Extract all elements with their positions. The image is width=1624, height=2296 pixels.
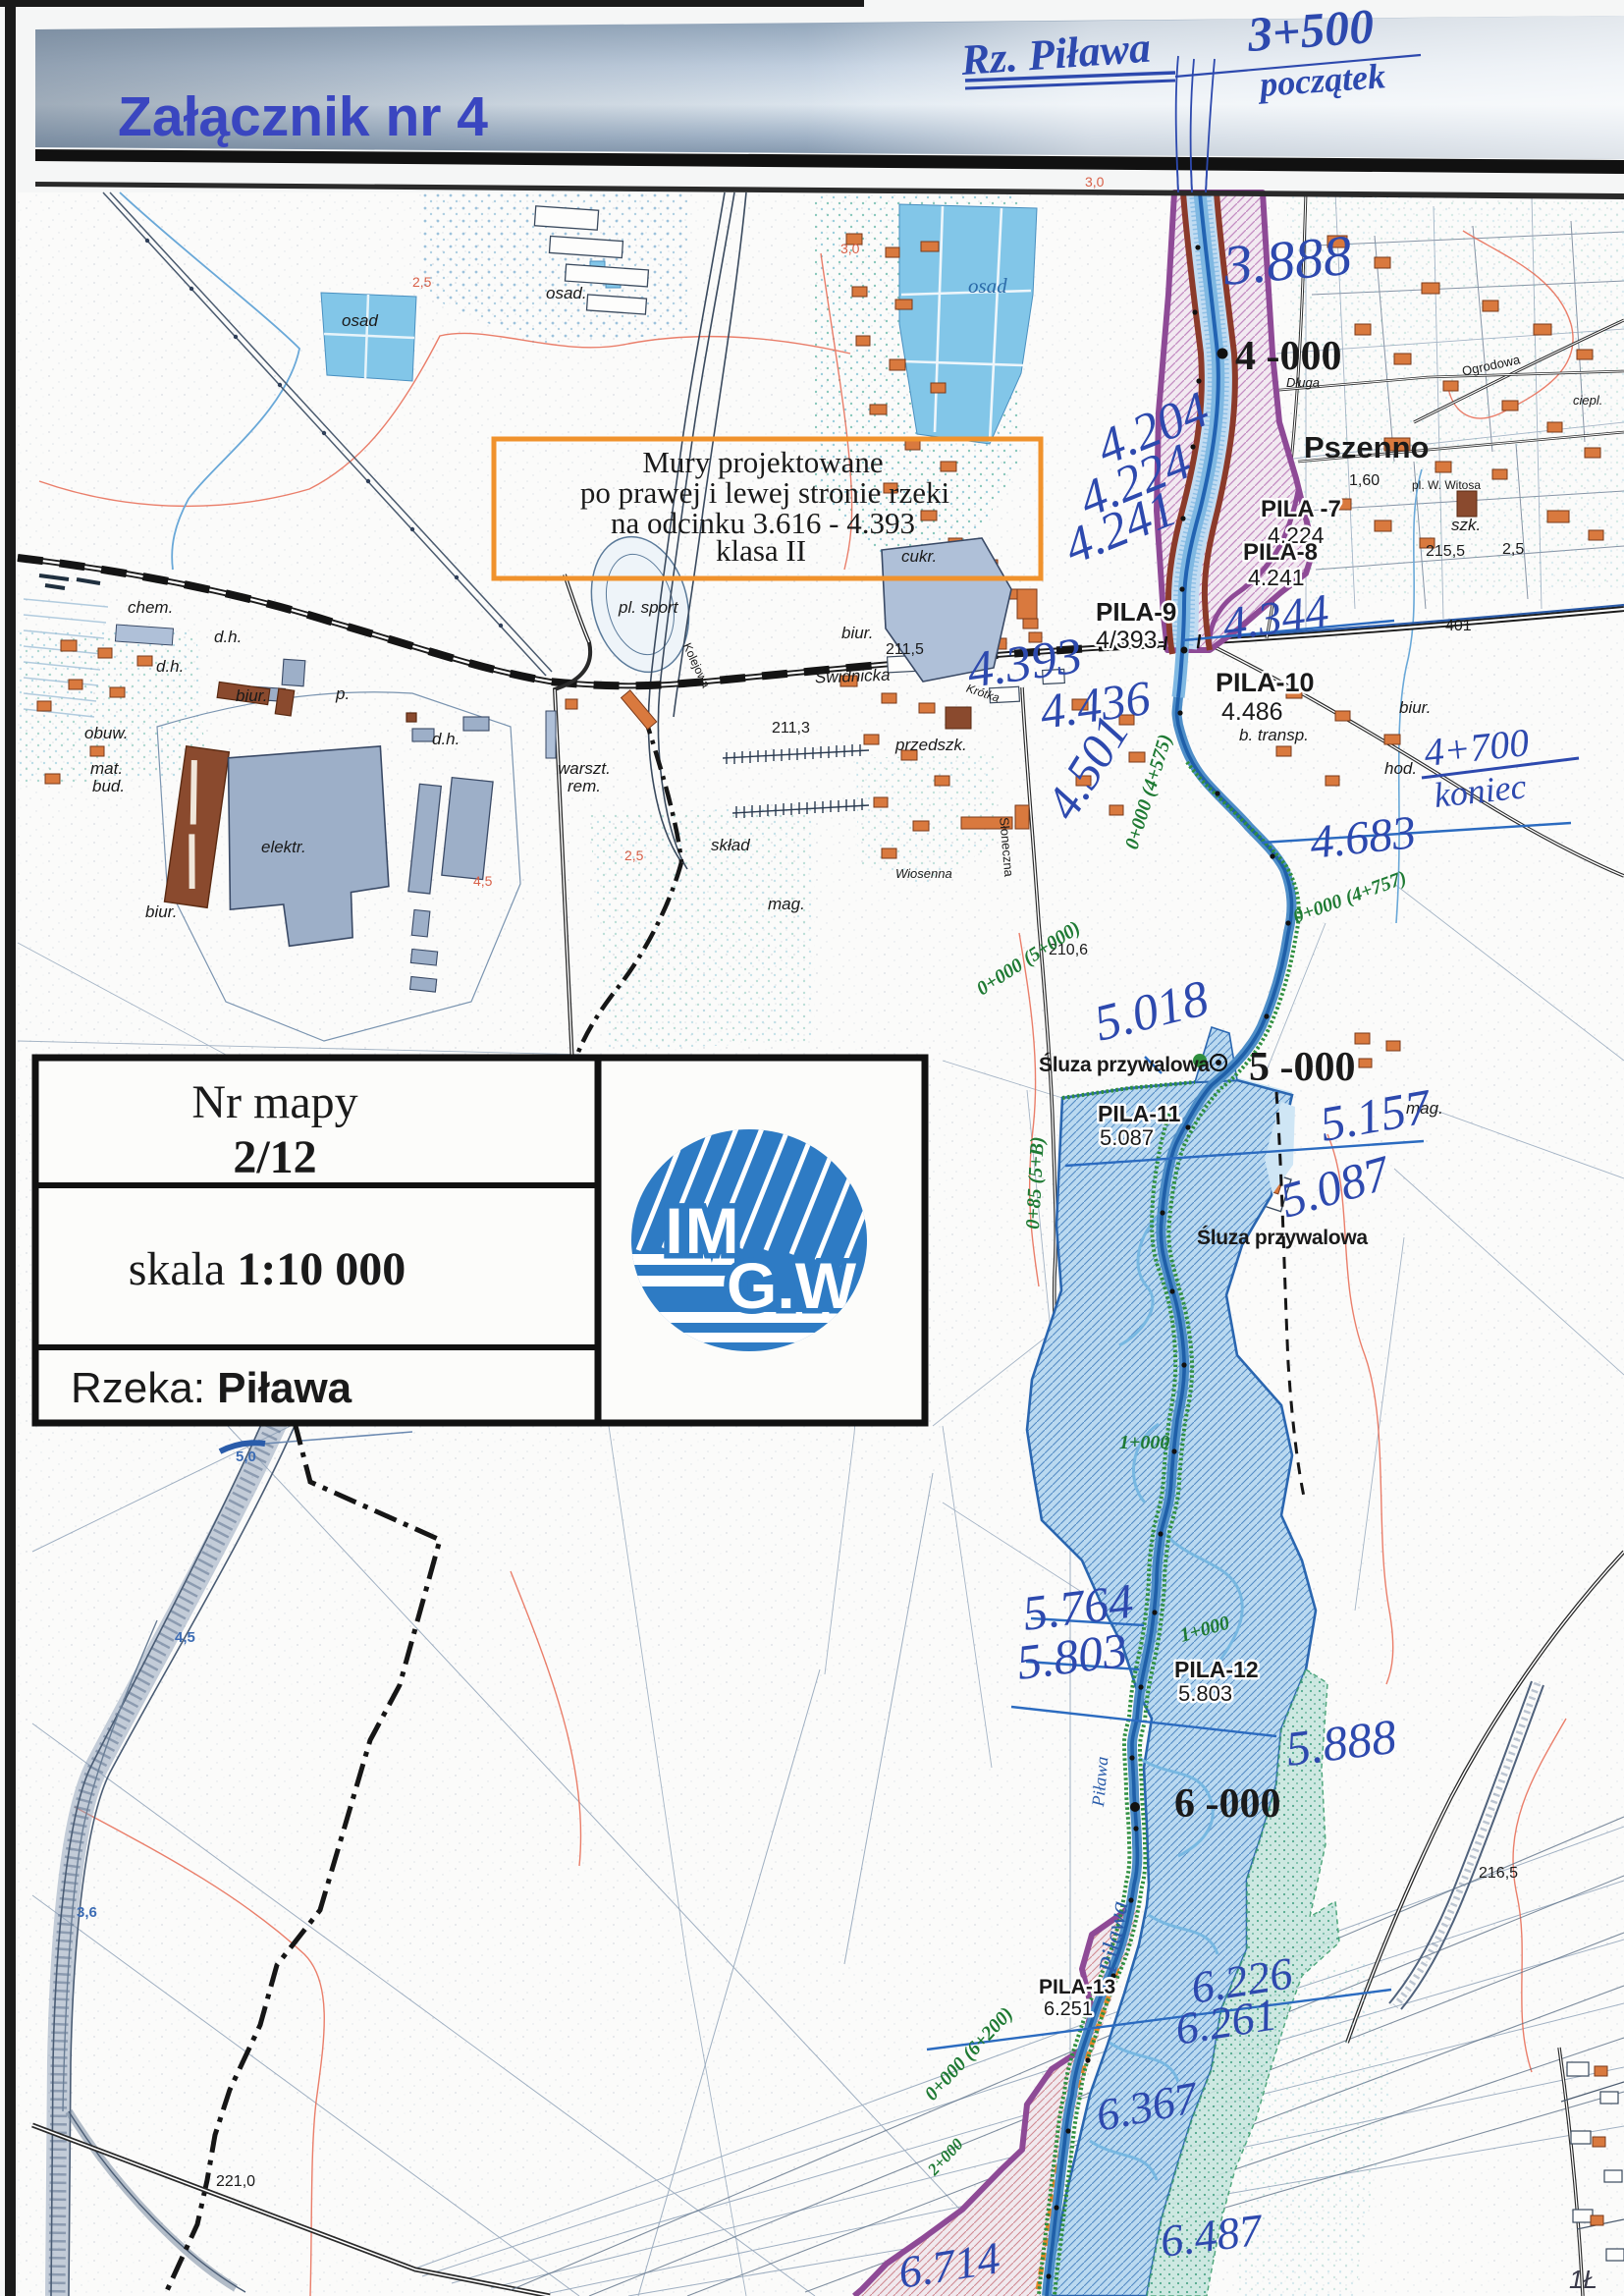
svg-text:Rzeka: Piława: Rzeka: Piława xyxy=(71,1364,352,1412)
svg-text:ciepl.: ciepl. xyxy=(1573,393,1602,408)
svg-text:mag.: mag. xyxy=(768,895,805,913)
svg-text:Śluza przywalowa: Śluza przywalowa xyxy=(1039,1053,1210,1076)
svg-text:pl. sport: pl. sport xyxy=(618,598,679,617)
svg-text:3,6: 3,6 xyxy=(77,1904,97,1921)
svg-text:2/12: 2/12 xyxy=(233,1131,316,1183)
svg-text:Załącznik nr 4: Załącznik nr 4 xyxy=(118,85,488,148)
svg-text:PILA-10: PILA-10 xyxy=(1216,668,1315,697)
svg-text:po prawej i lewej stronie rzek: po prawej i lewej stronie rzeki xyxy=(580,475,950,510)
svg-text:3,0: 3,0 xyxy=(1085,174,1105,190)
svg-text:2,5: 2,5 xyxy=(624,847,644,863)
svg-text:d.h.: d.h. xyxy=(156,657,184,676)
svg-text:4.683: 4.683 xyxy=(1308,806,1419,869)
svg-text:PILA -7: PILA -7 xyxy=(1261,496,1341,522)
svg-text:skład: skład xyxy=(711,836,750,854)
svg-text:5 -000: 5 -000 xyxy=(1249,1045,1356,1090)
svg-text:cukr.: cukr. xyxy=(901,547,937,566)
svg-text:4/393: 4/393 xyxy=(1096,627,1158,654)
svg-text:biur.: biur. xyxy=(841,624,873,642)
svg-text:3.888: 3.888 xyxy=(1219,223,1354,298)
svg-text:2,5: 2,5 xyxy=(1502,541,1524,558)
svg-text:4,5: 4,5 xyxy=(473,873,493,889)
svg-text:3,0: 3,0 xyxy=(840,241,860,256)
svg-text:6 -000: 6 -000 xyxy=(1174,1781,1281,1827)
svg-text:PILA-12: PILA-12 xyxy=(1174,1657,1259,1682)
svg-text:5.803: 5.803 xyxy=(1178,1681,1232,1706)
svg-text:221,0: 221,0 xyxy=(216,2173,255,2190)
svg-text:osad.: osad. xyxy=(546,284,587,302)
svg-text:6.251: 6.251 xyxy=(1044,1998,1093,2020)
svg-text:Pszenno: Pszenno xyxy=(1304,430,1429,465)
svg-text:401: 401 xyxy=(1445,618,1472,634)
svg-text:Wiosenna: Wiosenna xyxy=(895,866,952,881)
svg-text:rem.: rem. xyxy=(568,777,601,795)
svg-text:1,60: 1,60 xyxy=(1349,472,1380,489)
svg-text:Śluza przywalowa: Śluza przywalowa xyxy=(1197,1226,1368,1249)
svg-text:elektr.: elektr. xyxy=(261,838,306,856)
svg-text:przedszk.: przedszk. xyxy=(894,736,967,754)
svg-text:G.W: G.W xyxy=(727,1249,857,1322)
svg-text:osad: osad xyxy=(968,274,1007,298)
svg-text:Świdnicka: Świdnicka xyxy=(815,666,891,687)
svg-text:obuw.: obuw. xyxy=(84,724,128,742)
svg-text:215,5: 215,5 xyxy=(1426,543,1465,560)
svg-text:4 -000: 4 -000 xyxy=(1235,334,1342,379)
svg-text:211,3: 211,3 xyxy=(772,720,810,737)
svg-text:b. transp.: b. transp. xyxy=(1239,726,1309,744)
svg-text:5.087: 5.087 xyxy=(1100,1125,1154,1150)
svg-text:biur.: biur. xyxy=(236,686,267,705)
svg-text:szk.: szk. xyxy=(1451,516,1481,534)
svg-text:5,0: 5,0 xyxy=(236,1449,256,1465)
svg-text:pl. W. Witosa: pl. W. Witosa xyxy=(1412,478,1481,492)
svg-text:warszt.: warszt. xyxy=(558,759,611,778)
svg-text:PILA-8: PILA-8 xyxy=(1243,539,1318,566)
svg-text:PILA-11: PILA-11 xyxy=(1098,1101,1181,1126)
svg-text:1+000: 1+000 xyxy=(1119,1432,1169,1453)
svg-text:Nr mapy: Nr mapy xyxy=(191,1076,357,1128)
svg-text:osad: osad xyxy=(342,311,378,330)
svg-text:4,5: 4,5 xyxy=(175,1629,195,1646)
svg-text:biur.: biur. xyxy=(1399,698,1431,717)
svg-text:4.241: 4.241 xyxy=(1248,565,1305,590)
svg-text:p.: p. xyxy=(335,684,350,703)
svg-text:216,5: 216,5 xyxy=(1479,1865,1518,1882)
svg-text:mat.: mat. xyxy=(90,759,123,778)
svg-text:PILA-9: PILA-9 xyxy=(1096,597,1176,627)
svg-text:hod.: hod. xyxy=(1384,759,1417,778)
svg-text:biur.: biur. xyxy=(145,902,177,921)
svg-text:klasa II: klasa II xyxy=(716,533,806,568)
svg-text:Mury projektowane: Mury projektowane xyxy=(642,445,883,479)
svg-text:2,5: 2,5 xyxy=(412,274,432,290)
svg-text:1Ł: 1Ł xyxy=(1569,2265,1597,2294)
svg-text:d.h.: d.h. xyxy=(214,628,242,646)
svg-text:d.h.: d.h. xyxy=(432,730,460,748)
svg-text:bud.: bud. xyxy=(92,777,125,795)
svg-text:chem.: chem. xyxy=(128,598,173,617)
svg-text:3+500: 3+500 xyxy=(1245,0,1376,62)
svg-text:211,5: 211,5 xyxy=(886,641,924,658)
svg-text:4.486: 4.486 xyxy=(1221,698,1283,726)
svg-text:PILA-13: PILA-13 xyxy=(1039,1976,1115,1998)
svg-text:skala 1:10 000: skala 1:10 000 xyxy=(129,1243,406,1295)
